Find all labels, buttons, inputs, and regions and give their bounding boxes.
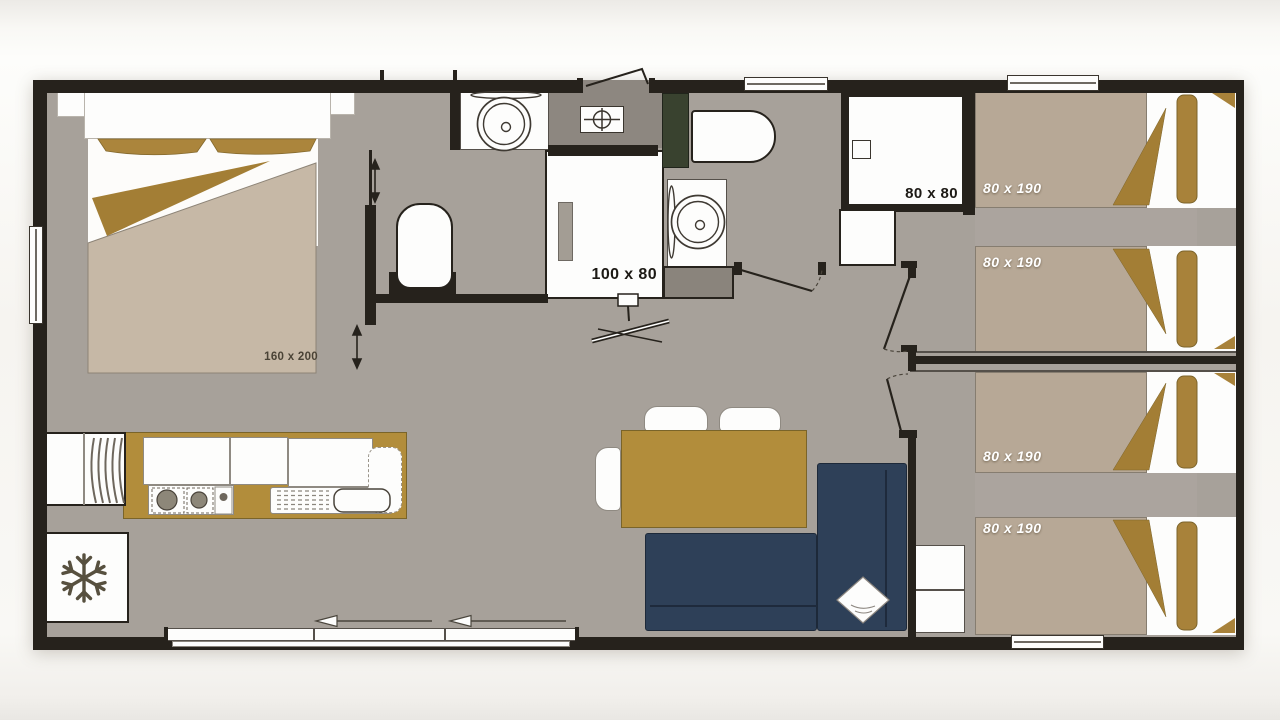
sofa-armrest-line-h xyxy=(650,605,817,607)
patio-door-post-right xyxy=(575,627,579,642)
sliding-door-panel xyxy=(365,205,376,325)
sofa-seat-horizontal xyxy=(645,533,817,631)
hall-wardrobe xyxy=(839,209,896,266)
wall-stub-top xyxy=(908,266,916,278)
patio-door-post-left xyxy=(164,627,168,642)
dining-chair-top-2 xyxy=(719,407,781,432)
wall-bedroom-divider-line2 xyxy=(910,370,1236,372)
wc-wall-block xyxy=(663,266,734,299)
sofa-seat-vertical xyxy=(817,463,907,631)
wall-livingroom-right xyxy=(908,430,916,640)
pantry-divider xyxy=(83,433,85,505)
patio-door-track xyxy=(167,628,576,641)
fridge xyxy=(38,532,129,623)
bedroom3-wardrobe-top xyxy=(915,545,965,590)
wall-tick-2 xyxy=(453,70,457,81)
dining-chair-left xyxy=(595,447,621,511)
green-cabinet xyxy=(662,93,689,168)
wall-shower80-right xyxy=(963,90,975,215)
shower-door-handle xyxy=(558,202,573,261)
bedroom3-wardrobe-bottom xyxy=(915,590,965,633)
entry-door-opening xyxy=(583,80,649,93)
patio-door-lower-track xyxy=(172,641,570,647)
label-twin-bed-1: 80 x 190 xyxy=(983,180,1042,196)
patio-door-divider-1 xyxy=(313,628,315,641)
vent-box xyxy=(580,106,624,133)
label-twin-bed-2: 80 x 190 xyxy=(983,254,1042,270)
window-top-1 xyxy=(744,77,828,91)
shower-80-drain xyxy=(852,140,871,159)
wall-bedroom-divider-line1 xyxy=(910,351,1236,353)
bedside-table-right xyxy=(329,91,355,115)
kitchen-counter-return xyxy=(368,447,402,513)
patio-door-divider-2 xyxy=(444,628,446,641)
kitchen-cabinet-1 xyxy=(143,437,230,485)
kitchen-cabinet-3 xyxy=(288,438,373,487)
label-master-bed: 160 x 200 xyxy=(234,351,318,363)
label-twin-bed-3: 80 x 190 xyxy=(983,448,1042,464)
kitchen-cabinet-2 xyxy=(230,437,288,485)
floor-plan-page: { "floor_plan": { "type": "mobile-home f… xyxy=(0,0,1280,720)
label-twin-bed-4: 80 x 190 xyxy=(983,520,1042,536)
wall-left xyxy=(33,80,47,650)
wall-bedroom-divider xyxy=(910,356,1236,364)
bed-gap-strip-2 xyxy=(975,473,1197,517)
washbasin-left xyxy=(460,88,549,150)
wall-wc-jamb-left xyxy=(734,262,742,275)
toilet-master xyxy=(396,203,453,289)
label-shower-100x80: 100 x 80 xyxy=(557,266,657,284)
sliding-door-track xyxy=(369,150,372,207)
dining-chair-top-1 xyxy=(644,406,708,432)
window-bottom-right xyxy=(1011,635,1104,649)
entry-door-jamb-left xyxy=(577,78,583,93)
toilet-wc xyxy=(691,110,776,163)
wall-wc-jamb-right xyxy=(818,262,826,275)
kitchen-hob xyxy=(148,485,234,515)
washbasin-right xyxy=(667,179,727,267)
wall-vanity-left xyxy=(450,93,460,150)
wall-entry-bottom xyxy=(548,145,658,156)
window-top-2 xyxy=(1007,75,1099,91)
entry-door-jamb-right xyxy=(649,78,655,93)
wall-under-wc xyxy=(366,294,548,303)
dining-table xyxy=(621,430,807,528)
master-bed-sheet xyxy=(88,139,318,246)
wall-stub-mid xyxy=(908,345,916,371)
sofa-armrest-line-v xyxy=(885,470,887,627)
bed-gap-strip-1 xyxy=(975,208,1197,246)
wall-tick-1 xyxy=(380,70,384,81)
window-left xyxy=(29,226,43,324)
label-shower-80x80: 80 x 80 xyxy=(870,185,958,202)
master-bed-headboard xyxy=(84,91,331,139)
wall-right xyxy=(1236,80,1244,650)
